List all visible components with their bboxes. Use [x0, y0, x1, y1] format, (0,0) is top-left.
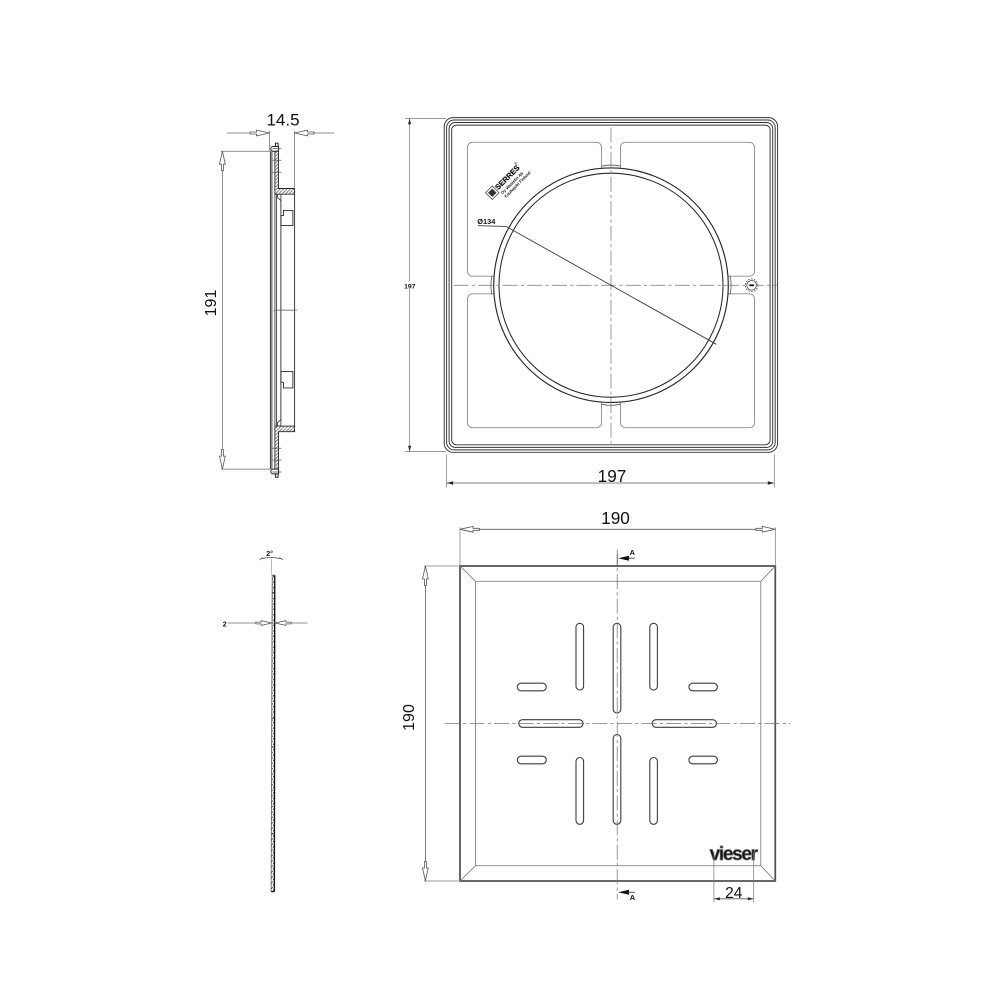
- svg-text:2°: 2°: [266, 550, 273, 558]
- svg-text:14.5: 14.5: [266, 110, 299, 129]
- svg-text:190: 190: [601, 508, 630, 528]
- svg-text:24: 24: [725, 885, 743, 902]
- svg-text:A: A: [630, 548, 636, 557]
- svg-text:197: 197: [404, 283, 416, 290]
- svg-text:Ø134: Ø134: [477, 217, 496, 226]
- svg-text:191: 191: [203, 290, 220, 317]
- svg-text:197: 197: [598, 466, 627, 486]
- svg-text:vieser: vieser: [710, 844, 759, 865]
- svg-text:2: 2: [223, 621, 227, 628]
- svg-text:A: A: [630, 893, 636, 902]
- svg-text:190: 190: [401, 704, 418, 731]
